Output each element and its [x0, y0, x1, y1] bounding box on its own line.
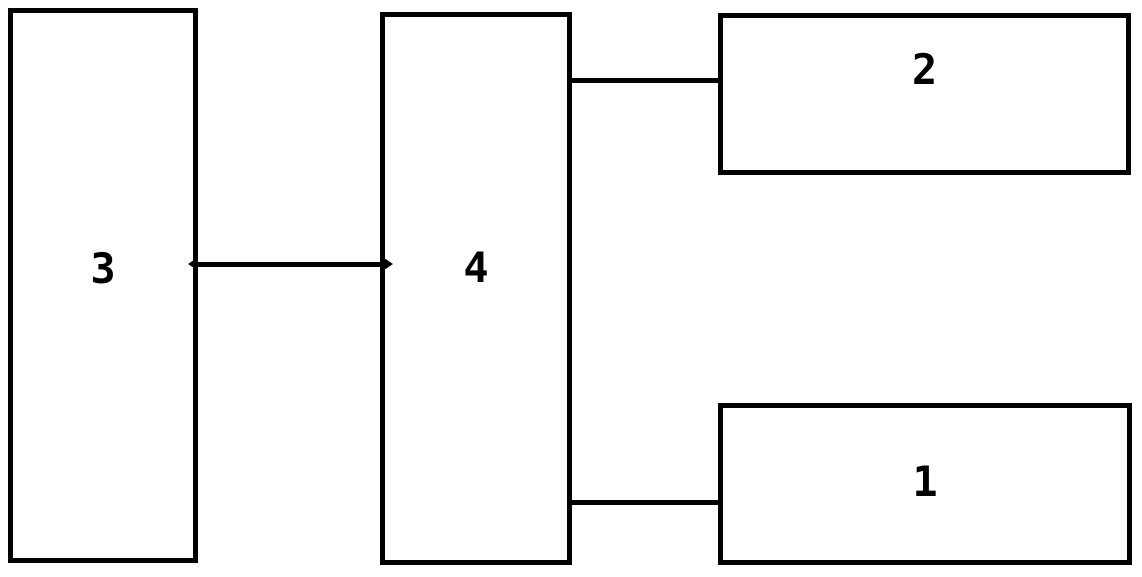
arrow-right-icon [384, 258, 393, 270]
connector-4-2 [567, 78, 721, 83]
arrow-left-icon [188, 258, 197, 270]
connector-4-1 [567, 500, 720, 505]
block-2-label: 2 [723, 49, 1126, 91]
block-2: 2 [718, 13, 1131, 175]
block-1-label: 1 [723, 461, 1127, 503]
block-4-label: 4 [385, 247, 567, 289]
block-1: 1 [718, 403, 1132, 565]
block-4: 4 [380, 12, 572, 565]
block-3-label: 3 [13, 248, 193, 290]
block-diagram: 3 4 2 1 [0, 0, 1142, 577]
connector-3-4 [196, 262, 386, 267]
block-3: 3 [8, 8, 198, 563]
